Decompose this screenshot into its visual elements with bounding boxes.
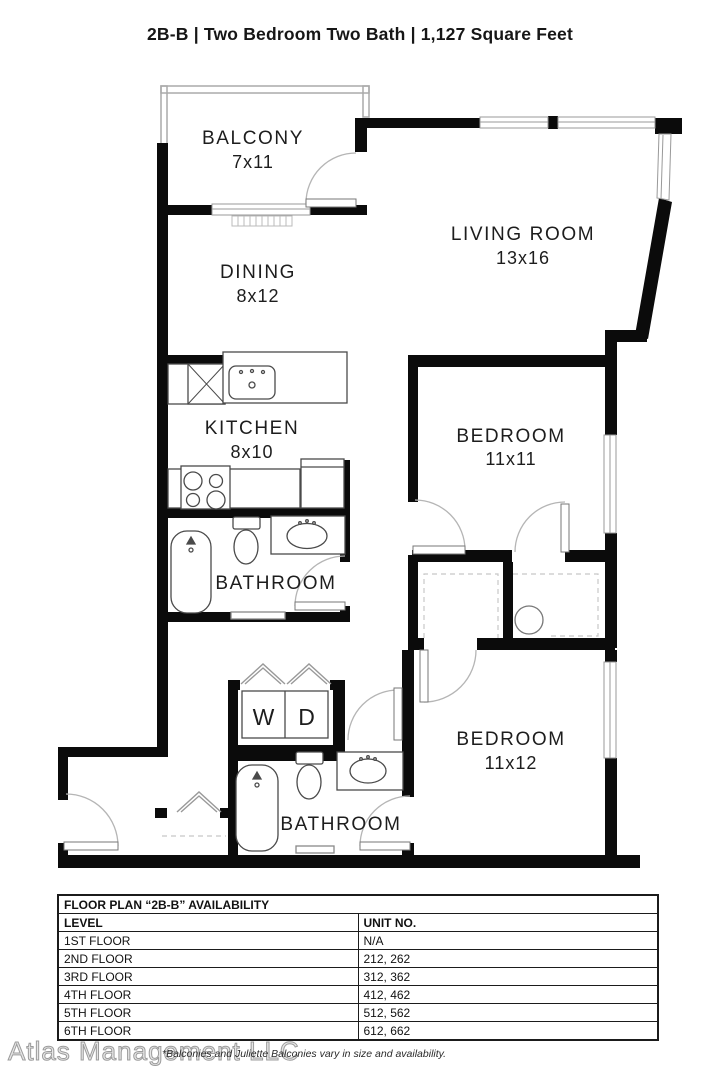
availability-title-row: FLOOR PLAN “2B-B” AVAILABILITY — [58, 895, 658, 914]
table-row: 2ND FLOOR 212, 262 — [58, 950, 658, 968]
table-row: 5TH FLOOR 512, 562 — [58, 1004, 658, 1022]
room-label-kitchen: KITCHEN — [205, 418, 300, 439]
refrigerator-icon — [188, 364, 225, 404]
bathtub-icon — [171, 531, 211, 613]
room-dims-bedroom2: 11x12 — [485, 753, 538, 773]
level-cell: 2ND FLOOR — [58, 950, 358, 968]
unit-cell: 212, 262 — [358, 950, 658, 968]
dryer-label: D — [298, 704, 316, 730]
availability-table: FLOOR PLAN “2B-B” AVAILABILITY LEVEL UNI… — [57, 894, 659, 1041]
bathroom2-fixtures — [236, 752, 403, 853]
water-heater-icon — [515, 606, 543, 634]
table-row: 4TH FLOOR 412, 462 — [58, 986, 658, 1004]
unit-cell: N/A — [358, 932, 658, 950]
towel-bar — [296, 846, 334, 853]
unit-cell: 612, 662 — [358, 1022, 658, 1041]
bedroom1-door-arc — [415, 500, 465, 550]
unit-cell: 312, 362 — [358, 968, 658, 986]
closet-door-arc — [515, 502, 565, 552]
availability-header-row: LEVEL UNIT NO. — [58, 914, 658, 932]
room-dims-kitchen: 8x10 — [230, 442, 273, 462]
table-row: 1ST FLOOR N/A — [58, 932, 658, 950]
room-dims-living: 13x16 — [496, 248, 550, 268]
bedroom2-door-arc — [424, 650, 476, 702]
kitchen-sink-icon — [229, 366, 275, 399]
entry-door-arc — [66, 794, 118, 846]
heater-icon — [232, 216, 292, 226]
dishwasher-icon — [301, 459, 344, 508]
availability-title: FLOOR PLAN “2B-B” AVAILABILITY — [58, 895, 658, 914]
living-room-corner-window — [657, 134, 671, 200]
room-label-living: LIVING ROOM — [451, 224, 595, 245]
table-row: 3RD FLOOR 312, 362 — [58, 968, 658, 986]
column-header-level: LEVEL — [58, 914, 358, 932]
washer-label: W — [253, 704, 276, 730]
room-dims-balcony: 7x11 — [232, 152, 274, 172]
hall-door-arc — [348, 690, 398, 740]
level-cell: 1ST FLOOR — [58, 932, 358, 950]
balcony-door-arc — [306, 153, 356, 203]
level-cell: 4TH FLOOR — [58, 986, 358, 1004]
toilet-icon — [233, 517, 260, 564]
room-label-bathroom2: BATHROOM — [280, 814, 401, 835]
room-label-bedroom1: BEDROOM — [456, 426, 565, 447]
room-label-dining: DINING — [220, 262, 296, 283]
room-label-bathroom1: BATHROOM — [215, 573, 336, 594]
bathtub-icon — [236, 765, 278, 851]
level-cell: 5TH FLOOR — [58, 1004, 358, 1022]
unit-cell: 512, 562 — [358, 1004, 658, 1022]
toilet-icon — [296, 752, 323, 799]
room-dims-bedroom1: 11x11 — [485, 449, 536, 469]
sink-vanity-icon — [337, 752, 403, 790]
towel-bar — [231, 612, 285, 619]
room-label-balcony: BALCONY — [202, 128, 304, 149]
room-dims-dining: 8x12 — [236, 286, 279, 306]
unit-cell: 412, 462 — [358, 986, 658, 1004]
room-label-bedroom2: BEDROOM — [456, 729, 565, 750]
disclaimer-text: *Balconies and Juliette Balconies vary i… — [162, 1048, 446, 1060]
stove-icon — [181, 466, 230, 509]
level-cell: 3RD FLOOR — [58, 968, 358, 986]
column-header-unit: UNIT NO. — [358, 914, 658, 932]
sink-vanity-icon — [271, 516, 345, 554]
